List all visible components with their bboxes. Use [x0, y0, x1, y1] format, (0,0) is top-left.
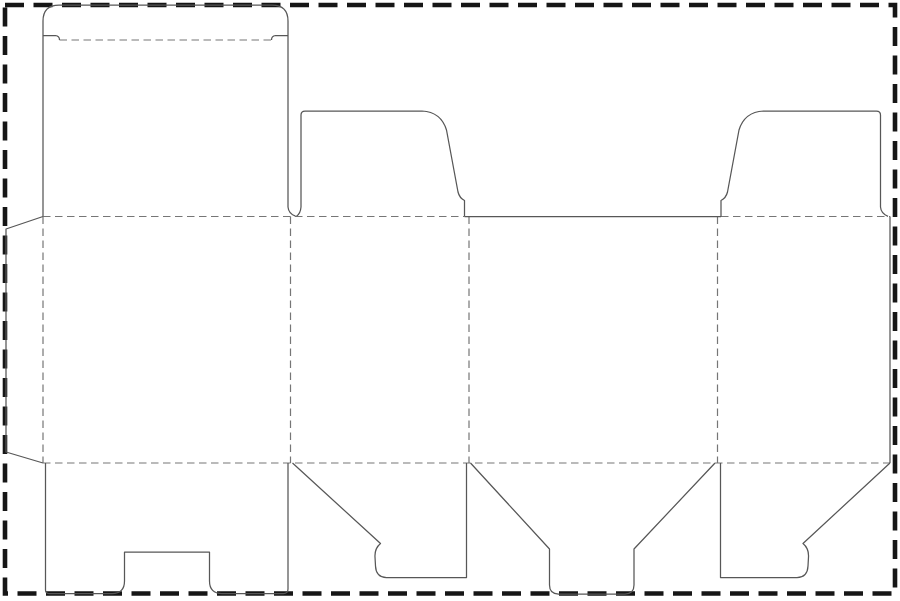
tuck-shoulder-left: [43, 36, 60, 41]
tuck-shoulder-right: [272, 36, 289, 41]
glue-flap-outline: [6, 217, 43, 464]
bottom-tongue-flap-outline: [471, 463, 716, 594]
dieline-sheet: [0, 0, 900, 601]
dust-flap-right-outline: [721, 111, 888, 217]
dust-flap-left-outline: [297, 111, 465, 217]
bottom-side-flap-left-outline: [293, 463, 467, 578]
bottom-lock-flap-outline: [46, 463, 289, 594]
dieline-drawing: [0, 0, 900, 601]
sheet-border: [5, 5, 895, 594]
bottom-side-flap-right-outline: [721, 463, 891, 578]
tuck-lid-outline: [43, 5, 296, 216]
